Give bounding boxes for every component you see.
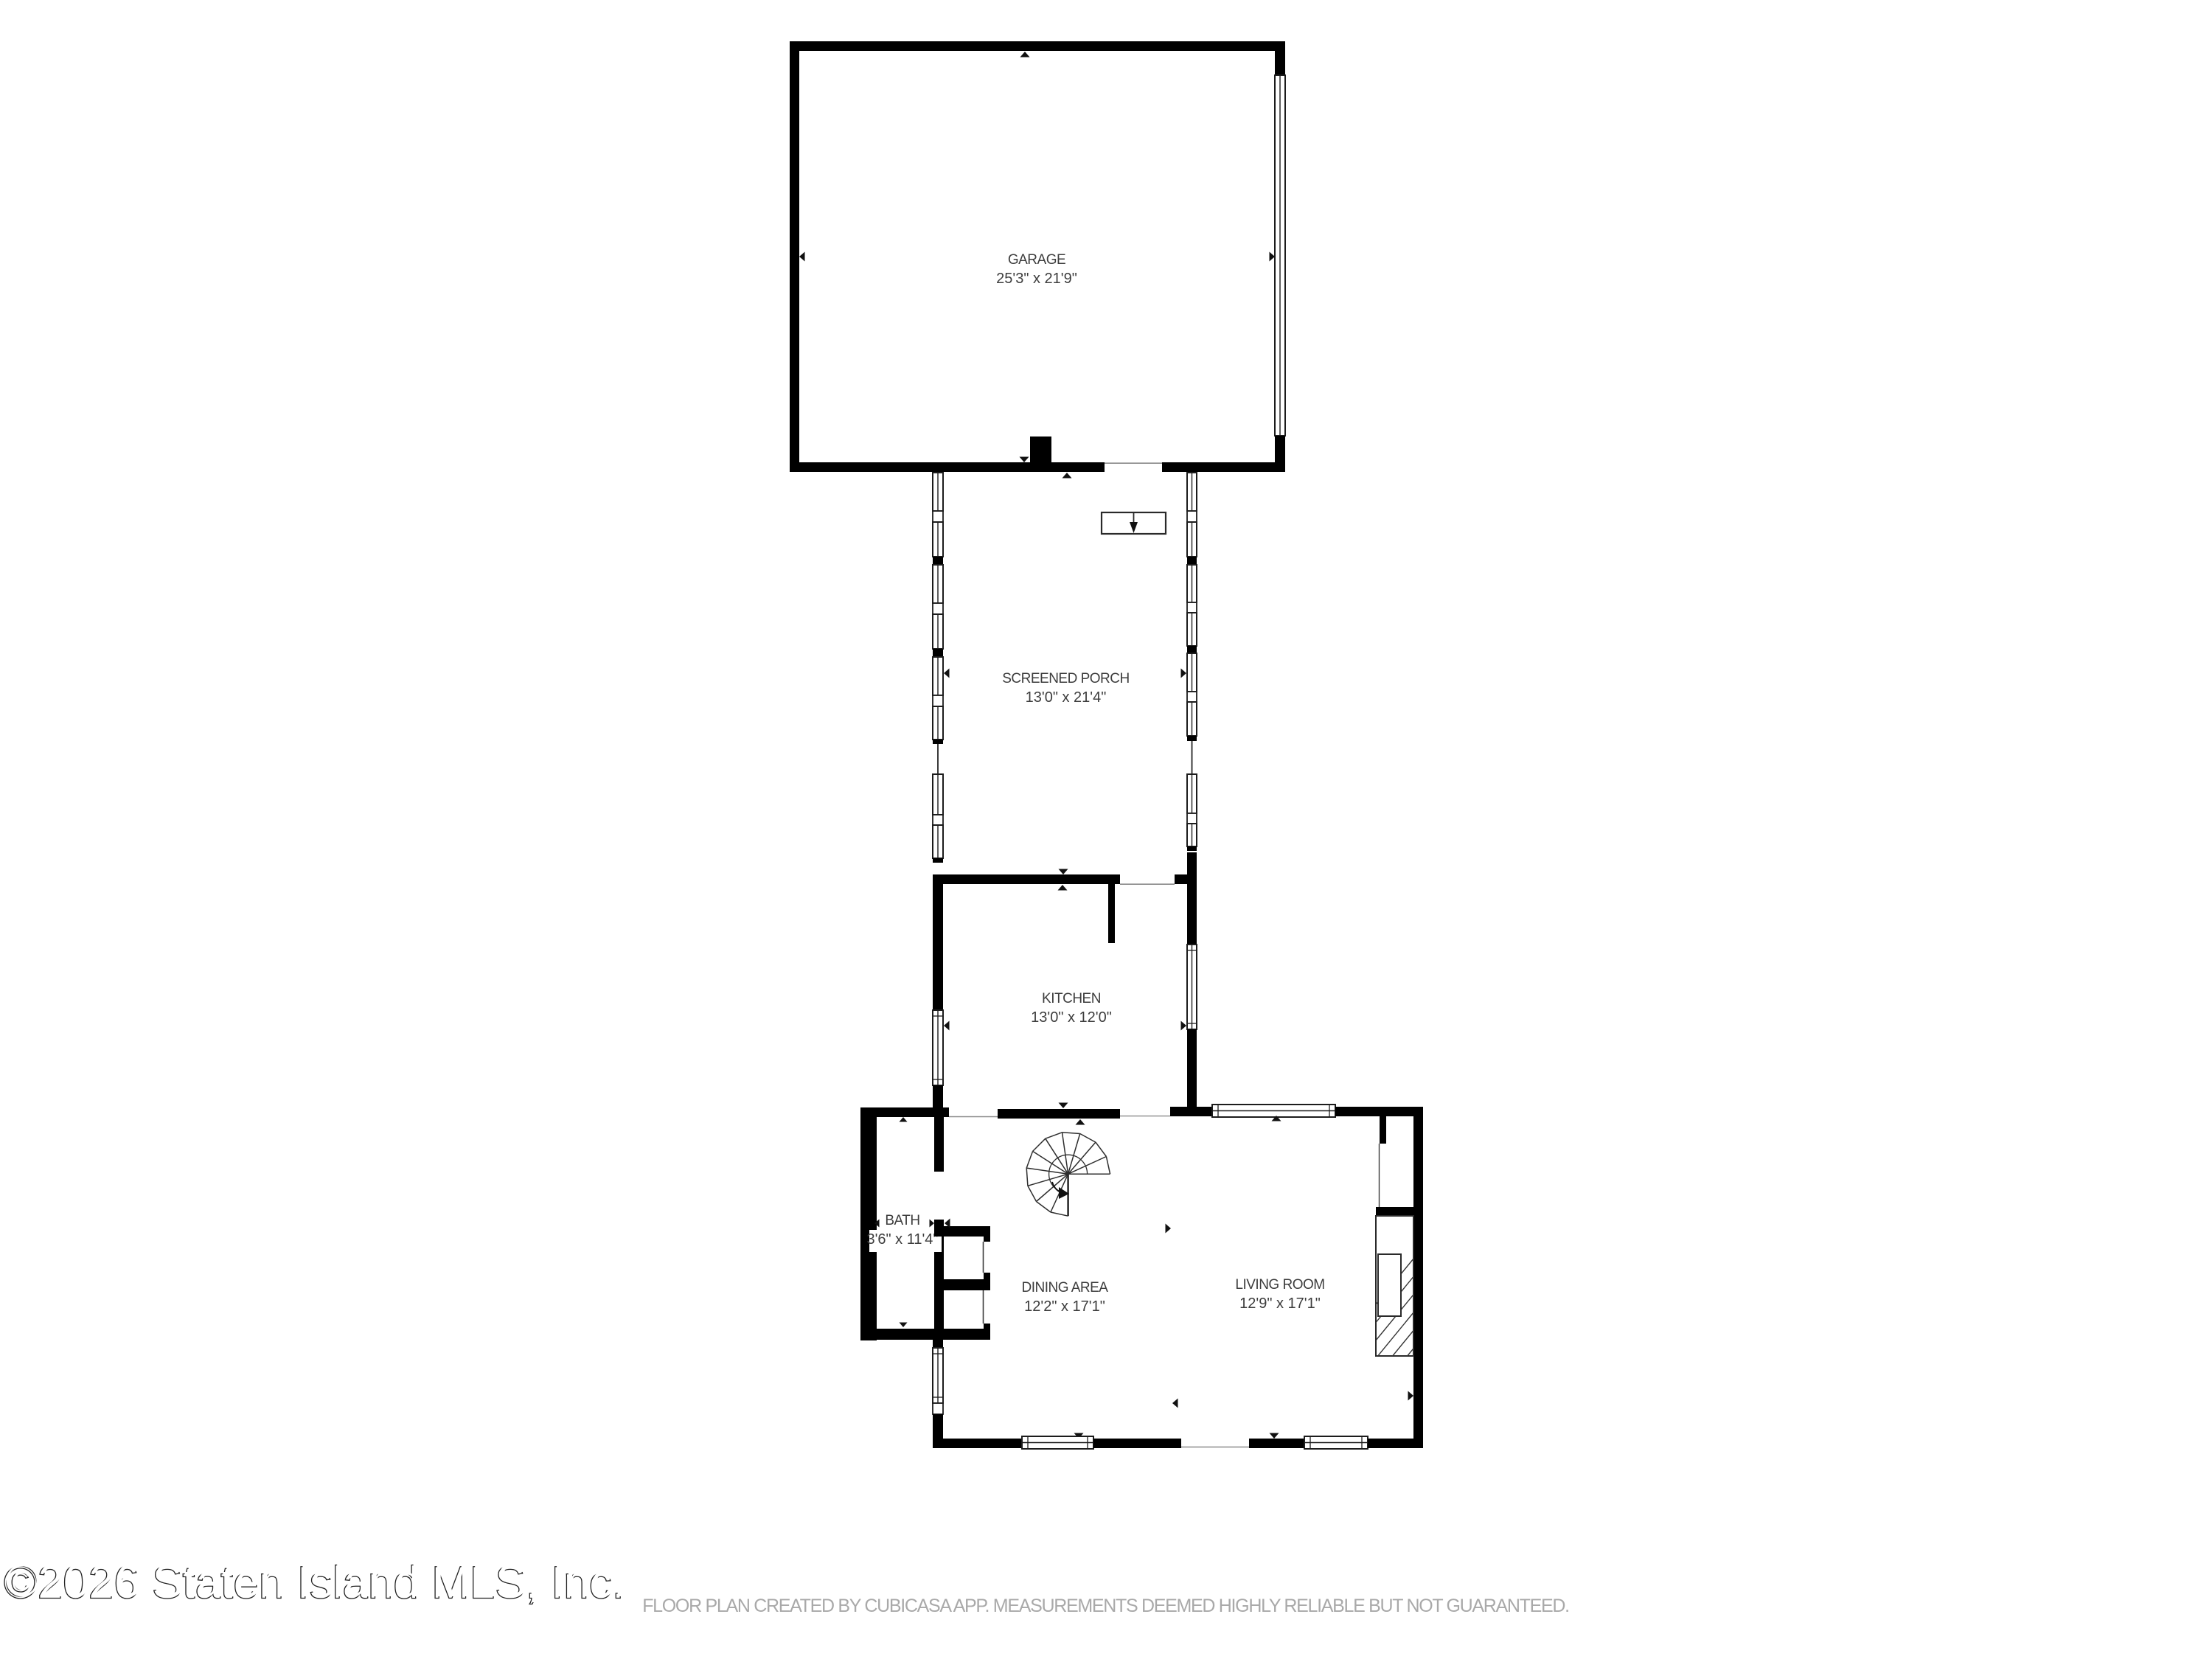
svg-text:12'2" x 17'1": 12'2" x 17'1" [1024,1298,1105,1315]
svg-text:KITCHEN: KITCHEN [1042,991,1101,1006]
svg-text:13'0" x 12'0": 13'0" x 12'0" [1031,1009,1112,1026]
svg-text:DINING AREA: DINING AREA [1022,1280,1109,1295]
svg-text:GARAGE: GARAGE [1008,252,1065,268]
svg-text:BATH: BATH [885,1213,919,1228]
svg-text:12'9" x 17'1": 12'9" x 17'1" [1239,1295,1321,1312]
svg-text:25'3" x 21'9": 25'3" x 21'9" [996,271,1077,287]
svg-text:©2026 Staten Island MLS, Inc.: ©2026 Staten Island MLS, Inc. [6,1556,627,1607]
svg-text:FLOOR PLAN CREATED BY CUBICASA: FLOOR PLAN CREATED BY CUBICASA APP. MEAS… [642,1596,1569,1616]
svg-text:3'6" x 11'4": 3'6" x 11'4" [866,1231,938,1248]
svg-text:13'0" x 21'4": 13'0" x 21'4" [1026,689,1107,706]
svg-text:SCREENED PORCH: SCREENED PORCH [1002,671,1129,686]
svg-text:LIVING ROOM: LIVING ROOM [1235,1277,1324,1293]
